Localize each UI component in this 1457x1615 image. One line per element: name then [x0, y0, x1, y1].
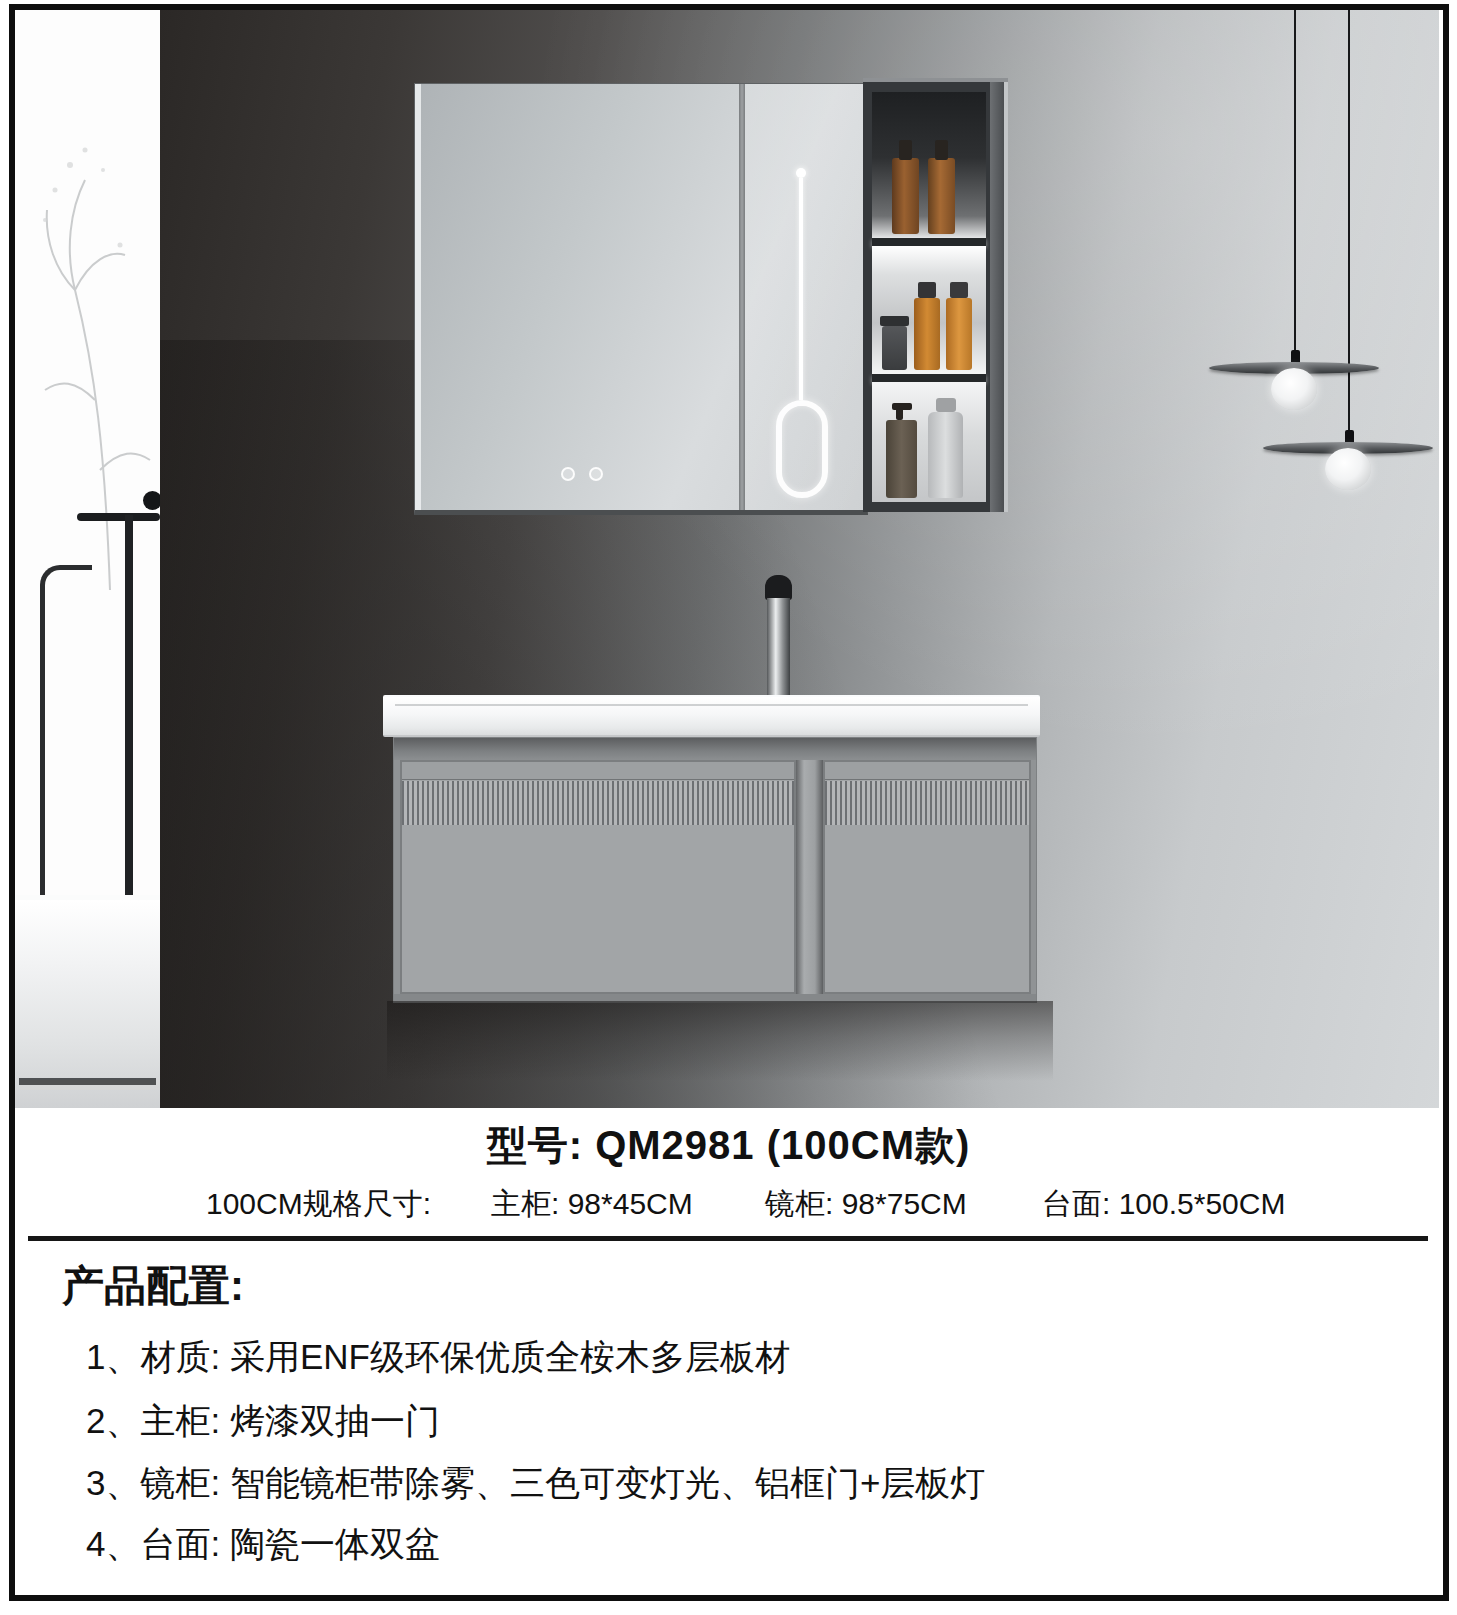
- basin-rim-line: [395, 704, 1028, 706]
- drawer-top-rail: [825, 762, 1029, 780]
- ceramic-countertop-basin: [383, 695, 1040, 737]
- frosted-bottle: [928, 412, 963, 498]
- orange-bottle: [946, 298, 972, 370]
- vanity-door-right: [823, 760, 1031, 994]
- config-section-title: 产品配置:: [62, 1258, 244, 1314]
- led-strip-light: [799, 178, 803, 400]
- jar-lid: [880, 316, 909, 326]
- size-main-cabinet: 主柜: 98*45CM: [491, 1184, 693, 1225]
- pump-bottle: [886, 420, 917, 498]
- shelf-side-highlight: [1004, 82, 1008, 512]
- bath-faucet-spout: [77, 513, 160, 521]
- led-dot-icon: [796, 168, 806, 178]
- config-item-material: 1、材质: 采用ENF级环保优质全桉木多层板材: [86, 1334, 1386, 1381]
- shelf-compartment-middle: [872, 246, 986, 374]
- bath-faucet-column: [125, 515, 133, 905]
- mirror-door-seam: [739, 84, 745, 510]
- shelf-board: [872, 374, 986, 382]
- tree-branches-graphic: [15, 70, 160, 590]
- shelf-compartment-top: [872, 92, 986, 238]
- size-countertop: 台面: 100.5*50CM: [1042, 1184, 1285, 1225]
- shelf-compartment-bottom: [872, 382, 986, 502]
- bathtub: [15, 895, 160, 1108]
- mirror-cabinet: [414, 83, 868, 515]
- mirror-touch-button-2: [589, 467, 603, 481]
- product-photo: [15, 10, 1439, 1108]
- dark-jar: [882, 326, 907, 370]
- model-title: 型号: QM2981 (100CM款): [0, 1118, 1457, 1173]
- pump-head: [892, 403, 912, 410]
- pendant-light-1-wire: [1294, 10, 1296, 356]
- bathtub-base-shadow: [19, 1078, 156, 1085]
- bottle-cap: [918, 282, 936, 298]
- amber-bottle: [892, 158, 919, 234]
- size-spec-label: 100CM规格尺寸:: [206, 1184, 431, 1225]
- side-shelf-cabinet: [863, 78, 1008, 512]
- drawer-top-rail: [402, 762, 794, 780]
- bottle-cap: [950, 282, 968, 298]
- vanity-divider: [796, 760, 823, 994]
- shelf-side-panel: [990, 82, 1004, 512]
- bottle-cap: [935, 140, 948, 160]
- bath-glass-screen: [40, 565, 92, 910]
- config-item-main-cabinet: 2、主柜: 烤漆双抽一门: [86, 1398, 1386, 1445]
- shelf-interior: [872, 92, 986, 502]
- shelf-board: [872, 238, 986, 246]
- window-scene: [15, 10, 160, 1108]
- section-divider: [28, 1236, 1428, 1241]
- size-mirror-cabinet: 镜柜: 98*75CM: [765, 1184, 967, 1225]
- product-spec-sheet: { "product": { "model_label": "型号: QM298…: [0, 0, 1457, 1615]
- basin-faucet-handle: [765, 575, 792, 600]
- basin-faucet: [767, 598, 790, 698]
- mirror-edge-highlight: [415, 84, 421, 510]
- pendant-light-2-bulb: [1325, 448, 1371, 490]
- bottle-cap: [899, 140, 912, 160]
- pendant-light-1-bulb: [1271, 368, 1317, 410]
- vanity-top-recess: [394, 738, 1036, 760]
- mirror-touch-button-1: [561, 467, 575, 481]
- config-item-countertop: 4、台面: 陶瓷一体双盆: [86, 1521, 1386, 1568]
- ribbed-trim: [825, 781, 1029, 825]
- ribbed-trim: [402, 781, 794, 825]
- vanity-under-shadow: [387, 1001, 1053, 1081]
- amber-bottle: [928, 158, 955, 234]
- orange-bottle: [914, 298, 940, 370]
- vanity-drawer-left: [400, 760, 796, 994]
- config-item-mirror-cabinet: 3、镜柜: 智能镜柜带除雾、三色可变灯光、铝框门+层板灯: [86, 1460, 1386, 1507]
- bottle-cap: [936, 398, 956, 412]
- led-ring-light: [776, 400, 828, 498]
- vanity-main-cabinet: [393, 737, 1037, 1003]
